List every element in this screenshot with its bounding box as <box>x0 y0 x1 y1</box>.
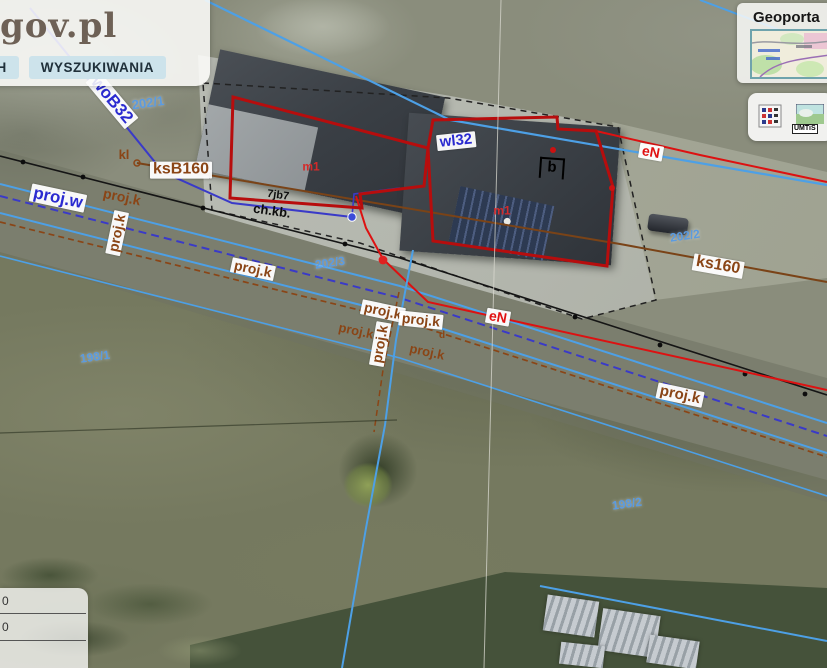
umtis-button[interactable]: UMTiS <box>795 100 825 130</box>
legend-grid-icon <box>758 104 782 128</box>
bush <box>332 452 404 518</box>
greenhouse <box>646 635 699 668</box>
minimap-panel[interactable]: Geoporta <box>737 3 827 83</box>
tab-danych[interactable]: DANYCH <box>0 56 19 79</box>
minimap-art <box>752 31 827 77</box>
tab-wyszukiwania[interactable]: WYSZUKIWANIA <box>29 56 166 79</box>
legend-button[interactable] <box>758 104 782 128</box>
list-separator <box>0 613 86 614</box>
list-item[interactable]: 0 <box>2 620 9 634</box>
list-separator <box>0 640 86 641</box>
umtis-label: UMTiS <box>792 124 818 134</box>
umtis-map-icon <box>796 104 824 124</box>
greenhouse <box>543 595 600 638</box>
greenhouse <box>559 642 605 668</box>
building-right <box>399 113 620 265</box>
minimap-title: Geoporta <box>753 9 820 26</box>
map-viewport[interactable]: woB32202/1klksB160proj.wproj.kproj.kproj… <box>0 0 827 668</box>
layer-list-panel: 0 0 <box>0 588 88 668</box>
geoportal-logo: gov.pl <box>0 6 117 46</box>
header-tabs: DANYCH WYSZUKIWANIA <box>0 56 166 79</box>
solar-panels <box>449 186 555 261</box>
list-item[interactable]: 0 <box>2 594 9 608</box>
map-toolbar: UMTiS <box>748 93 827 141</box>
minimap-image[interactable] <box>750 29 827 79</box>
